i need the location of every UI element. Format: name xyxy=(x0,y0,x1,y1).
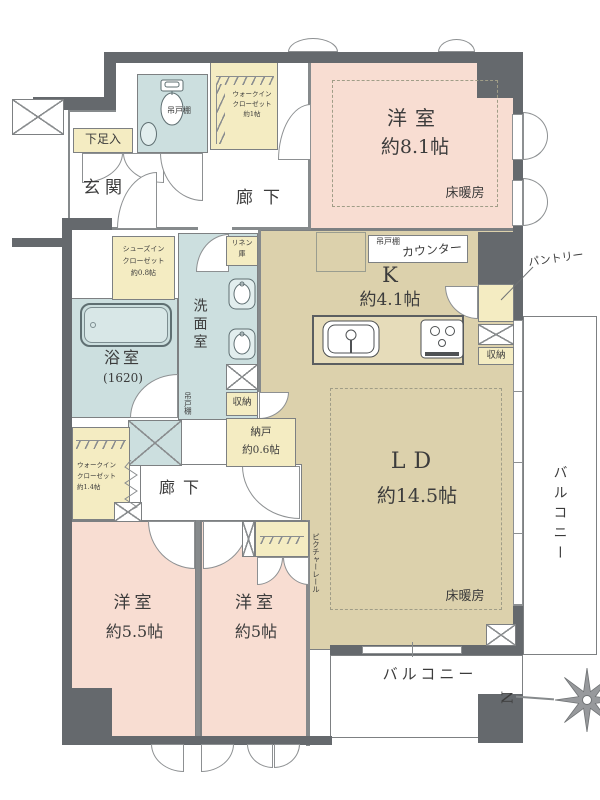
linen-label: リネン 庫 xyxy=(226,238,258,260)
pantry-storage-label: 収納 xyxy=(478,350,514,362)
window-bedroom1-right-2 xyxy=(512,180,523,226)
ld-floor-heating: 床暖房 xyxy=(425,589,505,605)
wall-bedroom-divider xyxy=(196,520,200,738)
bedroom3-name: 洋室 xyxy=(222,593,290,614)
washroom-cupboard-label: 吊戸棚 xyxy=(183,392,192,415)
bathtub-inner xyxy=(84,307,168,343)
balcony-bottom-label: バルコニー xyxy=(355,665,505,684)
stove-icon xyxy=(420,319,464,362)
bathroom-name: 浴室 xyxy=(88,348,158,368)
wall-top xyxy=(104,52,480,63)
toilet-sink xyxy=(140,122,157,146)
bedroom2-name: 洋室 xyxy=(92,593,177,614)
window-swing-right-1 xyxy=(523,112,548,160)
wic-upper-hanger-pipe-v xyxy=(216,84,225,144)
sic-label: シューズイン クローゼット 約0.8帖 xyxy=(113,244,174,280)
ld-corner-xbox xyxy=(486,624,516,646)
bathroom-size: (1620) xyxy=(86,371,160,386)
bedroom3-closet-xbox xyxy=(242,521,255,557)
washbasin-icon-2 xyxy=(228,326,256,362)
balcony-right-label: バルコニー xyxy=(550,465,568,565)
window-swing-top-1 xyxy=(288,38,338,52)
wic-upper-label: ウォークイン クローゼット 約1帖 xyxy=(228,90,276,119)
window-swing-right-2 xyxy=(523,178,548,226)
washroom-storage-label: 収納 xyxy=(226,397,258,409)
wic-lower-hanger-pipe xyxy=(76,440,126,449)
bedroom-main-size: 約8.1帖 xyxy=(330,136,500,160)
compass-icon xyxy=(552,665,600,735)
wic-lower-label: ウォークイン クローゼット 約1.4帖 xyxy=(74,460,131,493)
wall-bedroom1-left-a xyxy=(308,61,311,106)
entrance-label: 玄関 xyxy=(70,178,140,199)
wall-kitchen-left xyxy=(258,230,261,392)
picture-rail-label: ピクチャーレール xyxy=(311,533,320,593)
pantry-pointer-line xyxy=(495,264,537,304)
kitchen-sink-icon xyxy=(322,320,380,358)
bathtub-drain xyxy=(90,322,96,328)
kitchen-size: 約4.1帖 xyxy=(340,290,440,311)
wall-left-stub xyxy=(12,238,62,247)
wall-left xyxy=(62,225,72,745)
window-bedroom2-swing-1 xyxy=(151,744,184,772)
wall-corridor-bottom-b xyxy=(232,227,310,230)
pantry-xbox xyxy=(478,324,514,345)
shoe-box-label: 下足入 xyxy=(73,132,133,147)
compass-north-label: N xyxy=(499,687,518,707)
bedroom2-size: 約5.5帖 xyxy=(83,622,186,642)
window-ld-bottom-tick xyxy=(412,642,413,657)
bedroom-main-name: 洋室 xyxy=(330,106,500,131)
window-ld-balcony xyxy=(513,320,523,606)
washroom-xbox xyxy=(226,364,258,390)
bedroom1-door xyxy=(278,104,311,160)
ld-name: LD xyxy=(350,448,480,476)
porch-line-v xyxy=(68,110,70,228)
wall-topleft-connector xyxy=(62,218,112,230)
washroom-name: 洗面室 xyxy=(190,298,208,352)
toilet-cupboard-label: 吊戸棚 xyxy=(156,106,202,116)
corridor-upper-label: 廊下 xyxy=(218,188,308,209)
window-bedroom3-swing-2 xyxy=(274,744,300,768)
pantry-label: パントリー xyxy=(517,247,594,271)
porch-line-h xyxy=(68,110,116,112)
window-bedroom2-swing-2 xyxy=(201,744,234,772)
toilet-door xyxy=(160,153,203,201)
bedroom3-closet-hanger xyxy=(260,536,304,544)
wall-bottomleft-notch xyxy=(65,688,112,740)
washbasin-icon-1 xyxy=(228,276,256,312)
wall-bedroom1-left-b xyxy=(308,158,311,230)
corridor-lower-label: 廊下 xyxy=(148,478,218,498)
ld-size: 約14.5帖 xyxy=(342,485,492,509)
nando-label: 納戸 約0.6帖 xyxy=(226,424,296,460)
shaft-topleft-xbox xyxy=(12,99,64,135)
window-bedroom3-swing-1 xyxy=(247,744,273,768)
kitchen-name: K xyxy=(355,262,425,288)
bedroom-main-floor-heating: 床暖房 xyxy=(425,186,505,202)
toilet-icon xyxy=(152,79,192,129)
window-bedroom1-right-1 xyxy=(512,114,523,160)
bedroom3-size: 約5帖 xyxy=(217,622,295,642)
window-swing-top-2 xyxy=(438,39,475,52)
floor-plan: 洋室 約8.1帖 床暖房 玄関 下足入 廊下 吊戸棚 ウォークイン クローゼット… xyxy=(0,0,600,800)
